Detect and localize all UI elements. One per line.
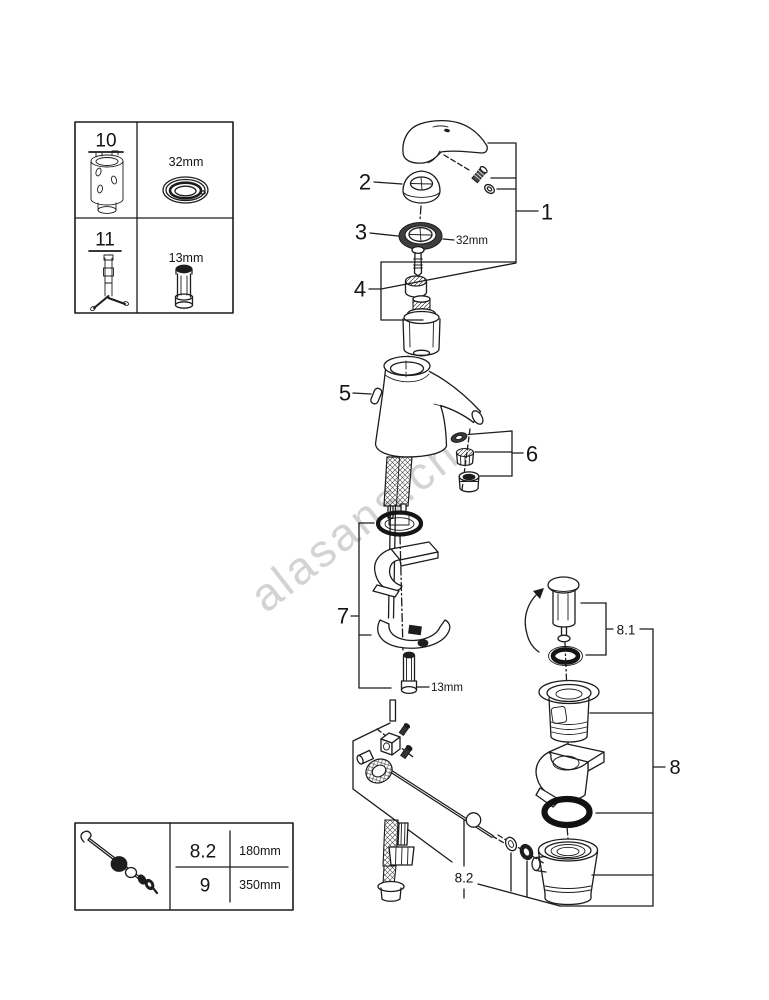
legend-dim-350mm: 350mm (239, 878, 281, 892)
dim-13mm-label: 13mm (431, 682, 463, 694)
handle-screw-nut (483, 183, 496, 196)
legend-ref-8-2: 8.2 (190, 842, 216, 863)
pivot-screw-upper (399, 723, 411, 736)
dim-32mm-leader (443, 239, 454, 240)
lever-handle (403, 121, 487, 164)
part-8-2-rod-group: 8.2 (353, 700, 560, 906)
callout-3-label: 3 (355, 220, 367, 245)
cartridge-body (403, 296, 440, 356)
callout-7-label: 7 (337, 604, 349, 629)
mounting-wedge (373, 542, 438, 597)
callout-8-label: 8 (669, 757, 680, 779)
drain-o-ring (545, 799, 590, 825)
callout-8-1-label: 8.1 (617, 623, 636, 638)
supply-hose (378, 820, 414, 901)
legend-dim-180mm: 180mm (239, 844, 281, 858)
tool-11-key-drawing (90, 255, 129, 311)
callout-2-leader (374, 182, 402, 184)
legend-dim-13mm: 13mm (169, 251, 204, 265)
legend-dim-32mm: 32mm (169, 155, 204, 169)
rod-assembly-drawing (81, 831, 157, 893)
mounting-nut-13mm (402, 652, 417, 693)
callout-8-2-label: 8.2 (455, 871, 474, 886)
watermark: alasans.ch (240, 427, 469, 622)
socket-13mm-drawing (176, 265, 193, 308)
horseshoe-washer (378, 620, 450, 648)
aerator-washer (450, 431, 468, 444)
drain-body (532, 839, 598, 905)
part-8-1-plug-group: 8.1 (525, 577, 653, 680)
part-8-drain-group: 8 (498, 629, 681, 906)
drain-flange (539, 681, 599, 742)
callout-4-label: 4 (354, 277, 366, 302)
cartridge-screw (412, 247, 424, 276)
callout-5-label: 5 (339, 381, 351, 406)
tool-10-socket-drawing (91, 151, 123, 213)
rotation-arrow (525, 588, 544, 652)
part-2-dome-cap: 2 (359, 170, 440, 221)
dim-32mm-label: 32mm (456, 235, 488, 247)
callout-3-leader (370, 233, 398, 236)
popup-plug (548, 577, 579, 642)
cartridge-cap (406, 276, 427, 297)
legend-ref-9: 9 (200, 876, 211, 897)
seal-ring-32mm-drawing (163, 177, 208, 203)
callout-2-label: 2 (359, 170, 371, 195)
callout-6-label: 6 (526, 442, 538, 467)
pivot-block (381, 733, 400, 755)
part-6-aerator-group: 6 (450, 429, 538, 492)
handle-screw (471, 165, 488, 183)
callout-5-leader (353, 393, 371, 394)
legend-ref-10: 10 (95, 131, 116, 152)
part-3-ring-32mm: 3 32mm (355, 220, 488, 250)
pivot-pin (390, 700, 396, 721)
legend-bottom-table: 8.2 180mm 9 350mm (75, 823, 293, 910)
callout-1-label: 1 (541, 200, 553, 225)
legend-top-table: 10 32mm 11 13mm (75, 122, 233, 313)
pivot-screw-lower (400, 744, 413, 758)
diagram-canvas: alasans.ch 10 32mm 11 13mm (0, 0, 769, 1000)
exploded-parts-diagram: alasans.ch 10 32mm 11 13mm (0, 0, 769, 1000)
part-1-handle-group: 1 (381, 121, 553, 289)
callout-6-bracket (468, 431, 523, 476)
legend-ref-11: 11 (95, 230, 115, 251)
part-4-cartridge-group: 4 (354, 247, 440, 362)
faucet-outline (376, 370, 481, 458)
handle-screw-axis-dashes (444, 155, 469, 170)
centerline-cap-ring (420, 206, 421, 220)
handle-pin-stub (370, 387, 383, 405)
